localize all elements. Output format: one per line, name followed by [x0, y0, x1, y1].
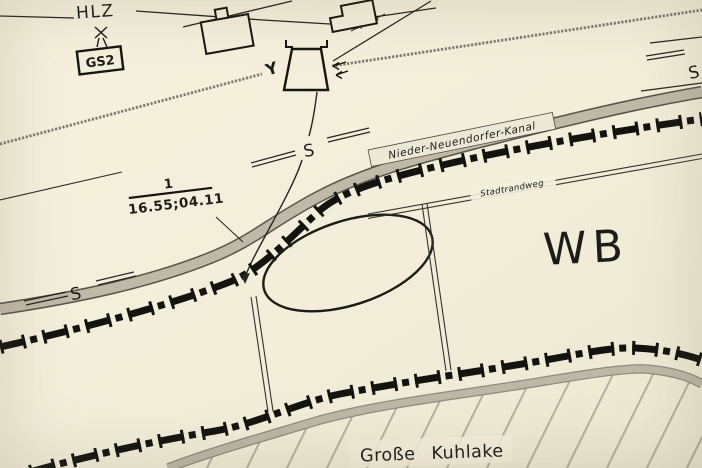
map-scan: Nieder-Neuendorfer-Kanal 40m HLZ	[0, 0, 702, 468]
map-canvas: Nieder-Neuendorfer-Kanal 40m HLZ	[0, 0, 702, 468]
marker-numerator: 1	[163, 177, 174, 193]
fence-label-hlz: HLZ	[76, 1, 116, 24]
water-name-plate: Große Kuhlake	[350, 435, 513, 468]
area-code-label: WB	[542, 220, 630, 275]
